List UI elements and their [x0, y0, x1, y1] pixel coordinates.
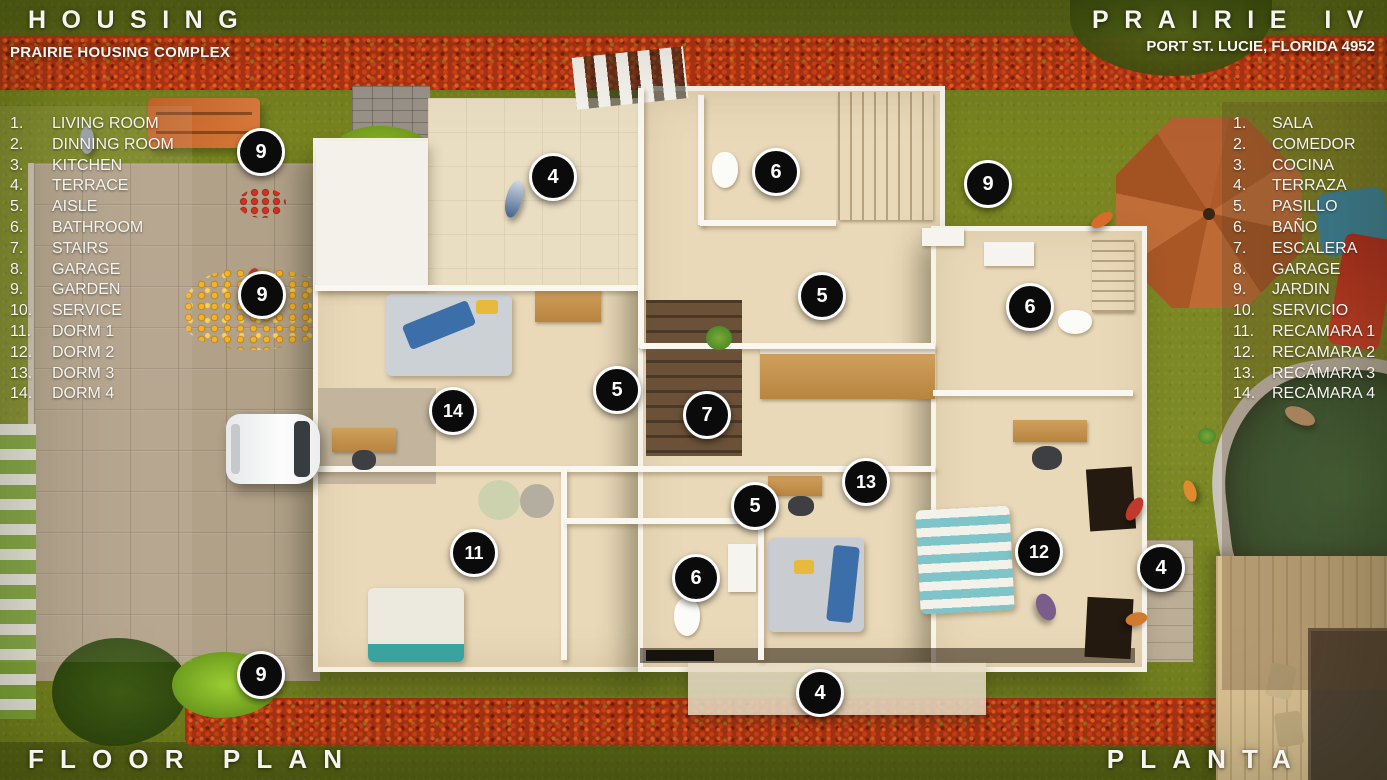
room-number-badge: 5 — [593, 366, 641, 414]
floor-plan-poster: HOUSING PRAIRIE IV PRAIRIE HOUSING COMPL… — [0, 0, 1387, 780]
room-number-badge: 11 — [450, 529, 498, 577]
room-number-badge: 9 — [238, 271, 286, 319]
room-number-badge: 14 — [429, 387, 477, 435]
room-number-badge: 9 — [237, 651, 285, 699]
room-number-badge: 6 — [672, 554, 720, 602]
room-number-badge: 5 — [798, 272, 846, 320]
room-number-badge: 4 — [529, 153, 577, 201]
room-number-badge: 5 — [731, 482, 779, 530]
room-number-badge: 6 — [1006, 283, 1054, 331]
room-number-badge: 13 — [842, 458, 890, 506]
badges-layer: 9469956514713511124694 — [0, 0, 1387, 780]
room-number-badge: 6 — [752, 148, 800, 196]
room-number-badge: 7 — [683, 391, 731, 439]
room-number-badge: 4 — [796, 669, 844, 717]
room-number-badge: 4 — [1137, 544, 1185, 592]
room-number-badge: 12 — [1015, 528, 1063, 576]
room-number-badge: 9 — [237, 128, 285, 176]
room-number-badge: 9 — [964, 160, 1012, 208]
